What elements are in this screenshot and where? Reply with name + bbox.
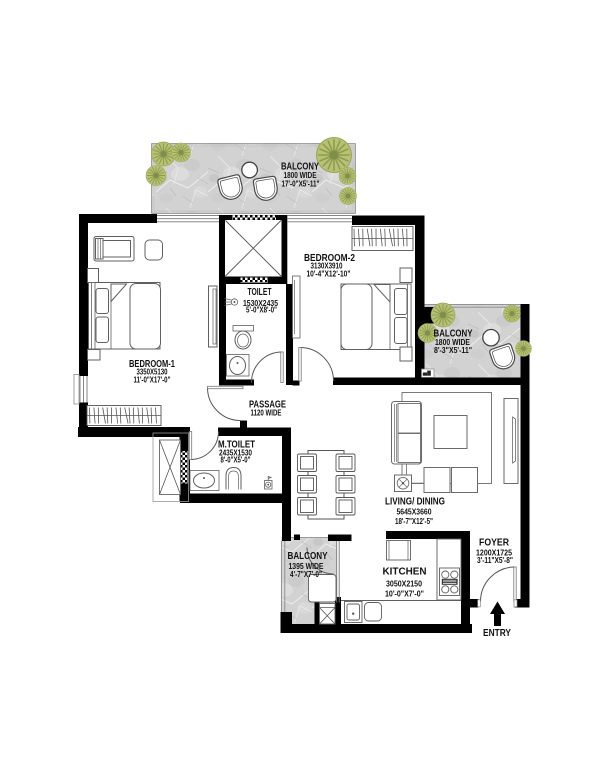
svg-text:5645X3660: 5645X3660 <box>397 508 432 517</box>
svg-text:LIVING/ DINING: LIVING/ DINING <box>385 497 445 508</box>
svg-text:ENTRY: ENTRY <box>483 628 511 639</box>
svg-text:KITCHEN: KITCHEN <box>383 567 427 578</box>
svg-text:5'-0"X8'-0": 5'-0"X8'-0" <box>246 305 277 314</box>
svg-text:18'-7"X12'-5": 18'-7"X12'-5" <box>395 517 433 526</box>
svg-text:10'-4"X12'-10": 10'-4"X12'-10" <box>307 270 351 279</box>
svg-text:1120 WIDE: 1120 WIDE <box>251 408 283 417</box>
svg-text:FOYER: FOYER <box>479 538 510 549</box>
svg-text:BALCONY: BALCONY <box>288 551 328 562</box>
svg-text:8'-3"X5'-11": 8'-3"X5'-11" <box>434 346 472 355</box>
svg-text:3050X2150: 3050X2150 <box>386 580 422 589</box>
svg-text:8'-0"X5'-0": 8'-0"X5'-0" <box>221 456 251 465</box>
svg-text:11'-0"X17'-0": 11'-0"X17'-0" <box>134 375 171 384</box>
svg-text:3'-11"X5'-8": 3'-11"X5'-8" <box>477 556 513 565</box>
svg-text:10'-0"X7'-0": 10'-0"X7'-0" <box>385 590 424 599</box>
svg-text:17'-0"X5'-11": 17'-0"X5'-11" <box>282 179 320 188</box>
svg-text:TOILET: TOILET <box>248 287 272 298</box>
svg-text:4'-7"X7'-0": 4'-7"X7'-0" <box>290 570 322 579</box>
